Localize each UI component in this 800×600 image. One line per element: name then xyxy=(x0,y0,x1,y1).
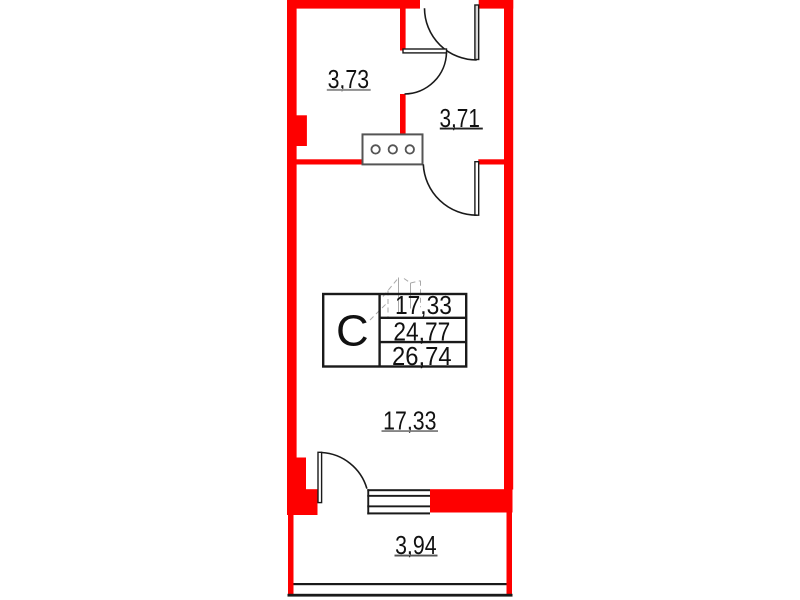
svg-text:С: С xyxy=(336,307,369,355)
svg-text:17,33: 17,33 xyxy=(395,292,452,321)
svg-text:26,74: 26,74 xyxy=(392,342,452,371)
